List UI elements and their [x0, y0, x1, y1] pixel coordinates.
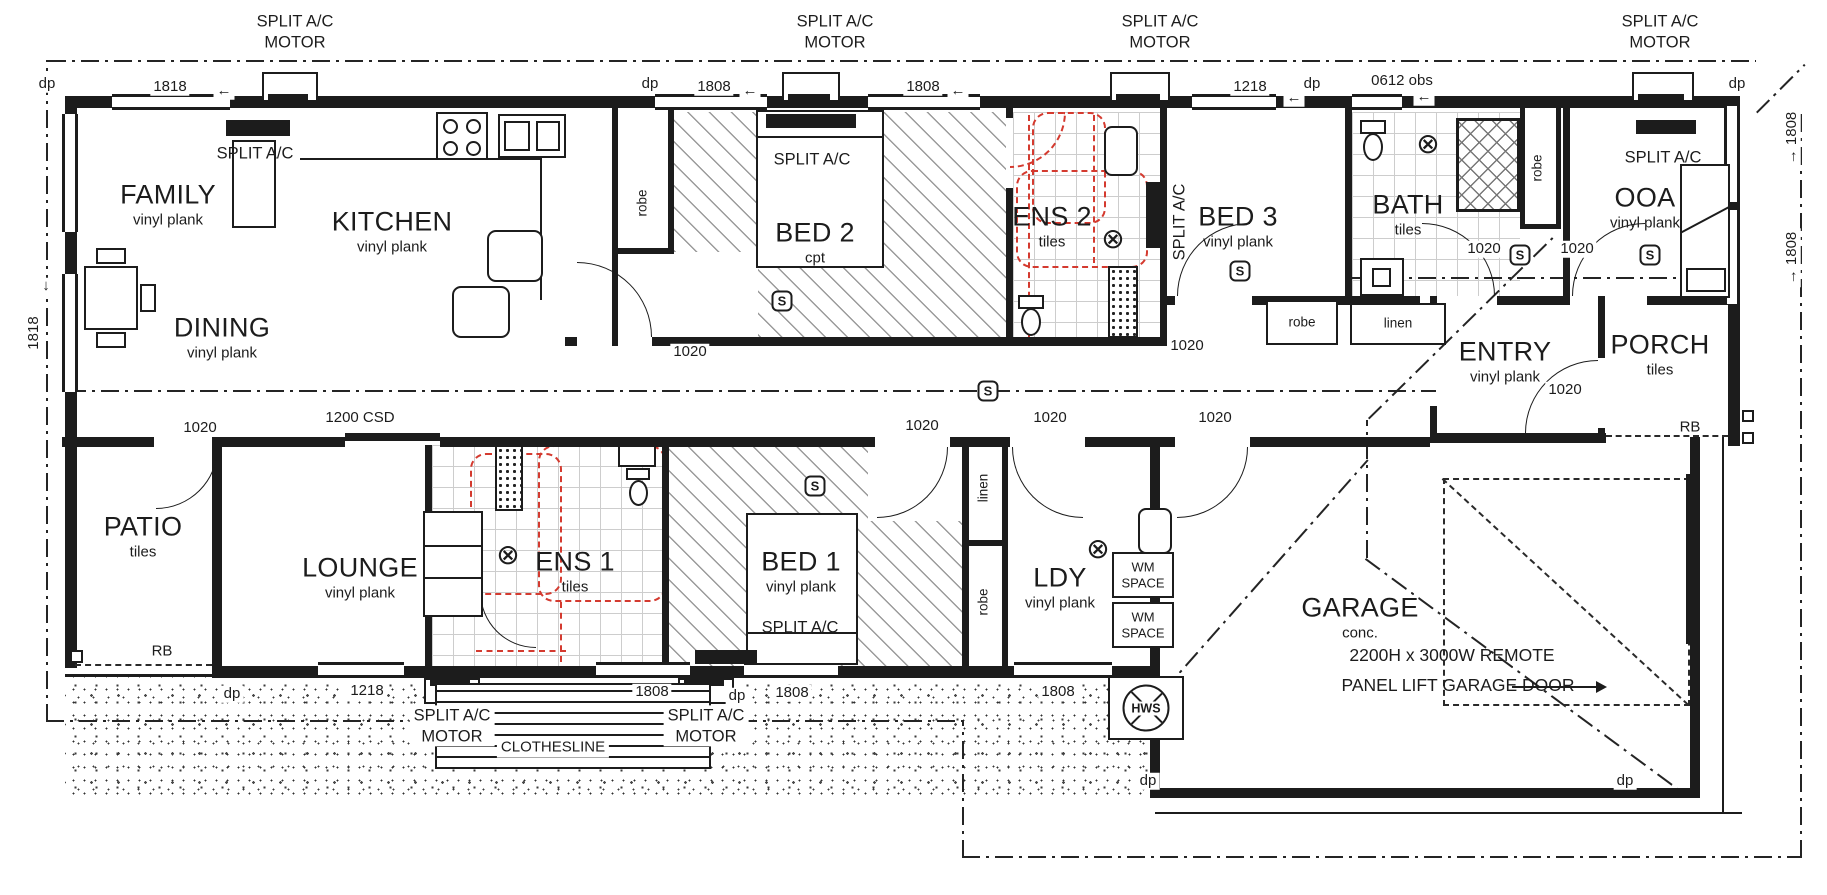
annotation-split-a-c-5: SPLIT A/C MOTOR	[664, 705, 749, 746]
annotation-split-a-c-4: SPLIT A/C MOTOR	[410, 705, 495, 746]
w	[962, 445, 969, 670]
room-finish: vinyl plank	[120, 211, 216, 228]
w	[1728, 296, 1740, 446]
room-name: KITCHEN	[332, 208, 453, 235]
w	[1085, 437, 1175, 447]
cooktop-burner	[443, 119, 458, 134]
porch-post-2	[1742, 432, 1754, 444]
boundary-connector	[962, 720, 964, 858]
w	[212, 437, 222, 678]
ooa-ac-head	[1636, 120, 1696, 134]
room-label-entry: ENTRYvinyl plank	[1459, 338, 1552, 385]
kitchen-sink-bowl-2	[536, 121, 560, 151]
room-label-bath: BATHtiles	[1372, 191, 1443, 238]
ens2-toilet-bowl	[1021, 308, 1041, 336]
window-family-west	[62, 114, 78, 232]
blk	[268, 94, 308, 101]
dimension-1818-14: 1818	[26, 313, 43, 352]
bed2-bed-line	[756, 136, 884, 138]
dimension-1020-22: 1020	[902, 418, 941, 435]
room-name: BED 3	[1198, 203, 1278, 230]
bath-toilet-bowl	[1363, 133, 1383, 161]
room-finish: vinyl plank	[1198, 233, 1278, 250]
dimension-dp-3: dp	[639, 76, 662, 93]
boundary-right	[1800, 110, 1802, 858]
bath-shower-crosshatch	[1456, 118, 1520, 212]
room-label-lounge: LOUNGEvinyl plank	[302, 554, 418, 601]
boundary-bottom-right	[962, 856, 1802, 858]
window-ens1-south	[596, 662, 690, 678]
room-label-garage: GARAGEconc.	[1301, 594, 1418, 641]
smoke-alarm-icon-5: S	[1640, 245, 1661, 266]
dimension-1808-6: 1808	[903, 79, 942, 96]
room-finish: tiles	[1372, 221, 1443, 238]
room-name: BED 2	[775, 219, 855, 246]
dining-chair-bottom	[96, 332, 126, 348]
light-fitting-icon-1: ⊗	[1416, 130, 1439, 158]
room-label-ens-1: ENS 1tiles	[535, 548, 615, 595]
room-finish: vinyl plank	[332, 238, 453, 255]
room-label-ens-2: ENS 2tiles	[1012, 203, 1092, 250]
kitchen-island	[487, 230, 543, 282]
blk	[1638, 94, 1684, 101]
blk	[1116, 94, 1160, 101]
dimension-dp-31: dp	[726, 688, 749, 705]
bed2-door-clear	[674, 252, 758, 337]
w	[1556, 108, 1561, 228]
room-label-family: FAMILYvinyl plank	[120, 181, 216, 228]
room-label-kitchen: KITCHENvinyl plank	[332, 208, 453, 255]
w	[218, 437, 345, 447]
room-finish: vinyl plank	[1025, 594, 1095, 611]
smoke-alarm-icon-2: S	[805, 476, 826, 497]
room-finish: vinyl plank	[302, 584, 418, 601]
annotation-split-a-c-9: SPLIT A/C	[1625, 148, 1702, 169]
annotation-split-a-c-7: SPLIT A/C	[774, 150, 851, 171]
w	[1006, 108, 1013, 118]
bed1-ac-head	[695, 650, 757, 664]
dimension-1218-29: 1218	[347, 683, 386, 700]
dimension-1808-17: → 1808	[1784, 229, 1801, 288]
dining-table	[84, 266, 138, 330]
hws-label: HWS	[1130, 701, 1161, 715]
bed2-door-arc	[577, 262, 652, 337]
annotation-split-a-c-10: SPLIT A/C	[762, 618, 839, 639]
ens1-toilet-bowl	[629, 480, 648, 506]
cooktop-burner	[466, 119, 481, 134]
boundary-left	[46, 60, 48, 722]
room-name: PORCH	[1610, 331, 1709, 358]
annotation-robe-16: robe	[976, 588, 993, 615]
dimension-1200-csd-21: 1200 CSD	[322, 410, 397, 427]
dimension-1020-23: 1020	[1030, 410, 1069, 427]
room-finish: tiles	[535, 578, 615, 595]
dimension--12: ←	[1414, 89, 1435, 106]
room-name: OOA	[1610, 184, 1680, 211]
floor-plan: FAMILYvinyl plankKITCHENvinyl plankDININ…	[0, 0, 1827, 895]
annotation-linen-15: linen	[976, 474, 993, 503]
room-label-ldy: LDYvinyl plank	[1025, 564, 1095, 611]
w	[1598, 296, 1605, 358]
ln	[423, 545, 483, 547]
room-label-bed-3: BED 3vinyl plank	[1198, 203, 1278, 250]
room-finish: tiles	[1012, 233, 1092, 250]
annotation-wm-17: WM SPACE	[1121, 559, 1164, 590]
bed2-ac-head	[766, 114, 856, 128]
dimension-1020-19: 1020	[1167, 338, 1206, 355]
family-ac-head	[226, 120, 290, 136]
w	[1345, 108, 1352, 305]
window-1218	[1192, 94, 1276, 110]
boundary-top	[48, 60, 1756, 62]
room-label-dining: DININGvinyl plank	[174, 314, 270, 361]
w	[950, 437, 1010, 447]
light-fitting-icon-3: ⊗	[1086, 535, 1109, 563]
dimension-1020-20: 1020	[180, 420, 219, 437]
dimension-1020-27: 1020	[1545, 382, 1584, 399]
w	[62, 437, 154, 447]
dimension-1218-8: 1218	[1230, 79, 1269, 96]
annotation-split-a-c-1: SPLIT A/C MOTOR	[793, 11, 878, 52]
smoke-alarm-icon-4: S	[1510, 245, 1531, 266]
kitchen-sink-bowl-1	[504, 121, 530, 151]
room-name: BED 1	[761, 548, 841, 575]
room-name: ENS 2	[1012, 203, 1092, 230]
room-name: FAMILY	[120, 181, 216, 208]
room-finish: vinyl plank	[174, 344, 270, 361]
dimension-1808-16: → 1808	[1784, 109, 1801, 168]
garage-eave-bottom	[1155, 812, 1742, 814]
garage-panel-door	[1686, 474, 1695, 644]
dimension-1020-18: 1020	[670, 344, 709, 361]
dimension-dp-28: dp	[221, 686, 244, 703]
ens1-red-line-1	[560, 602, 562, 662]
w	[1520, 108, 1525, 228]
garage-eave-right	[1722, 437, 1724, 812]
laundry-trough	[1138, 508, 1172, 554]
room-finish: conc.	[1301, 624, 1418, 641]
hws-icon: HWS	[1123, 685, 1170, 732]
room-name: DINING	[174, 314, 270, 341]
w	[1497, 296, 1570, 305]
dimension--10: ←	[1284, 90, 1305, 107]
ens2-vanity	[1104, 126, 1138, 176]
window-dining-west	[62, 274, 78, 392]
cooktop-burner	[466, 141, 481, 156]
bed3-ac-head	[1146, 182, 1162, 248]
dimension-1808-32: 1808	[772, 685, 811, 702]
w	[1160, 296, 1167, 346]
dimension-dp-34: dp	[1137, 773, 1160, 790]
ln	[65, 674, 215, 677]
room-label-porch: PORCHtiles	[1610, 331, 1709, 378]
room-name: PATIO	[104, 513, 183, 540]
annotation-split-a-c-8: SPLIT A/C	[1170, 184, 1191, 261]
room-finish: vinyl plank	[1459, 368, 1552, 385]
dimension--7: ←	[948, 83, 969, 100]
ens2-red-line-2	[1093, 115, 1095, 263]
dimension-dp-35: dp	[1614, 773, 1637, 790]
room-label-bed-2: BED 2cpt	[775, 219, 855, 266]
w	[1430, 433, 1606, 443]
corridor-centreline	[68, 390, 1436, 392]
ens1-toilet-tank	[626, 468, 650, 480]
dimension-dp-13: dp	[1726, 76, 1749, 93]
light-fitting-icon-0: ⊗	[1101, 225, 1124, 253]
garage-door-arrow-head	[1596, 681, 1607, 693]
annotation-linen-14: linen	[1384, 316, 1413, 333]
room-label-ooa: OOAvinyl plank	[1610, 184, 1680, 231]
smoke-alarm-icon-3: S	[1230, 261, 1251, 282]
ens2-shower-grate	[1108, 266, 1138, 338]
w	[1250, 437, 1430, 447]
room-name: BATH	[1372, 191, 1443, 218]
annotation-2200h-x-3000w-remote-22: 2200H x 3000W REMOTE	[1349, 645, 1554, 667]
window-ldy-south	[1014, 662, 1112, 678]
ens1-vanity	[618, 445, 656, 467]
room-finish: vinyl plank	[761, 578, 841, 595]
patio-rb-edge	[75, 664, 212, 666]
ens1-red-line-2	[476, 650, 566, 652]
dimension-1020-24: 1020	[1195, 410, 1234, 427]
annotation-split-a-c-3: SPLIT A/C MOTOR	[1618, 11, 1703, 52]
patio-door-arc	[156, 447, 218, 509]
annotation-split-a-c-0: SPLIT A/C MOTOR	[253, 11, 338, 52]
light-fitting-icon-2: ⊗	[496, 541, 519, 569]
kitchen-unit	[452, 286, 510, 338]
garage-south-wall	[1155, 788, 1700, 798]
window-1818	[112, 94, 230, 110]
ens1-shower-grate	[495, 445, 523, 511]
dimension--5: ←	[740, 83, 761, 100]
annotation-robe-13: robe	[1288, 315, 1315, 332]
dimension-1020-25: 1020	[1464, 241, 1503, 258]
room-name: GARAGE	[1301, 594, 1418, 621]
w	[668, 108, 674, 252]
room-finish: cpt	[775, 249, 855, 266]
room-label-patio: PATIOtiles	[104, 513, 183, 560]
porch-post-1	[1742, 410, 1754, 422]
dimension-dp-0: dp	[36, 76, 59, 93]
w	[962, 540, 1008, 546]
smoke-alarm-icon-0: S	[978, 381, 999, 402]
ldy-door-arc	[1012, 447, 1083, 518]
w	[1520, 224, 1561, 229]
room-label-bed-1: BED 1vinyl plank	[761, 548, 841, 595]
annotation-robe-12: robe	[1530, 154, 1547, 181]
annotation-clothesline-19: CLOTHESLINE	[497, 739, 609, 758]
dimension-1020-26: 1020	[1557, 241, 1596, 258]
boundary-corner-diagonal	[1756, 64, 1805, 113]
dimension-1808-4: 1808	[694, 79, 733, 96]
annotation-panel-lift-garage-door-23: PANEL LIFT GARAGE DOOR	[1341, 675, 1574, 697]
window-lounge-south	[318, 662, 404, 678]
annotation-split-a-c-2: SPLIT A/C MOTOR	[1118, 11, 1203, 52]
dining-chair-top	[96, 248, 126, 264]
kitchen-bench-edge	[300, 158, 542, 160]
window-0612-obs	[1352, 94, 1402, 110]
patio-post	[70, 650, 83, 663]
room-name: ENS 1	[535, 548, 615, 575]
dimension--15: ↓	[39, 278, 53, 295]
dimension-1818-1: 1818	[150, 79, 189, 96]
room-finish: tiles	[104, 543, 183, 560]
dimension--2: ←	[214, 83, 235, 100]
annotation-wm-18: WM SPACE	[1121, 609, 1164, 640]
blk	[788, 94, 830, 101]
dimension-1808-33: 1808	[1038, 684, 1077, 701]
cavity-slider-panel	[345, 433, 440, 441]
annotation-rb-20: RB	[152, 643, 173, 662]
w	[1563, 108, 1570, 303]
annotation-split-a-c-6: SPLIT A/C	[217, 144, 294, 165]
w	[612, 248, 674, 254]
room-name: LDY	[1025, 564, 1095, 591]
bath-vanity-basin	[1372, 268, 1391, 287]
room-finish: tiles	[1610, 361, 1709, 378]
annotation-robe-11: robe	[635, 189, 652, 216]
dimension-1808-30: 1808	[632, 684, 671, 701]
w	[662, 445, 669, 670]
cooktop-burner	[443, 141, 458, 156]
annotation-rb-21: RB	[1680, 419, 1701, 438]
w	[1013, 337, 1167, 346]
dining-chair-right	[140, 284, 156, 312]
lounge-sofa	[423, 511, 483, 617]
w	[1002, 445, 1008, 670]
room-name: LOUNGE	[302, 554, 418, 581]
room-name: ENTRY	[1459, 338, 1552, 365]
ooa-door-arc	[1572, 223, 1645, 296]
porch-rb-edge	[1606, 435, 1728, 437]
ooa-bed-foot	[1686, 268, 1726, 292]
room-finish: vinyl plank	[1610, 214, 1680, 231]
ln	[423, 577, 483, 579]
w	[565, 337, 577, 346]
bath-toilet-tank	[1360, 120, 1386, 134]
smoke-alarm-icon-1: S	[772, 291, 793, 312]
garage-hall-door-arc	[1177, 447, 1248, 518]
ens2-toilet-tank	[1018, 295, 1044, 309]
